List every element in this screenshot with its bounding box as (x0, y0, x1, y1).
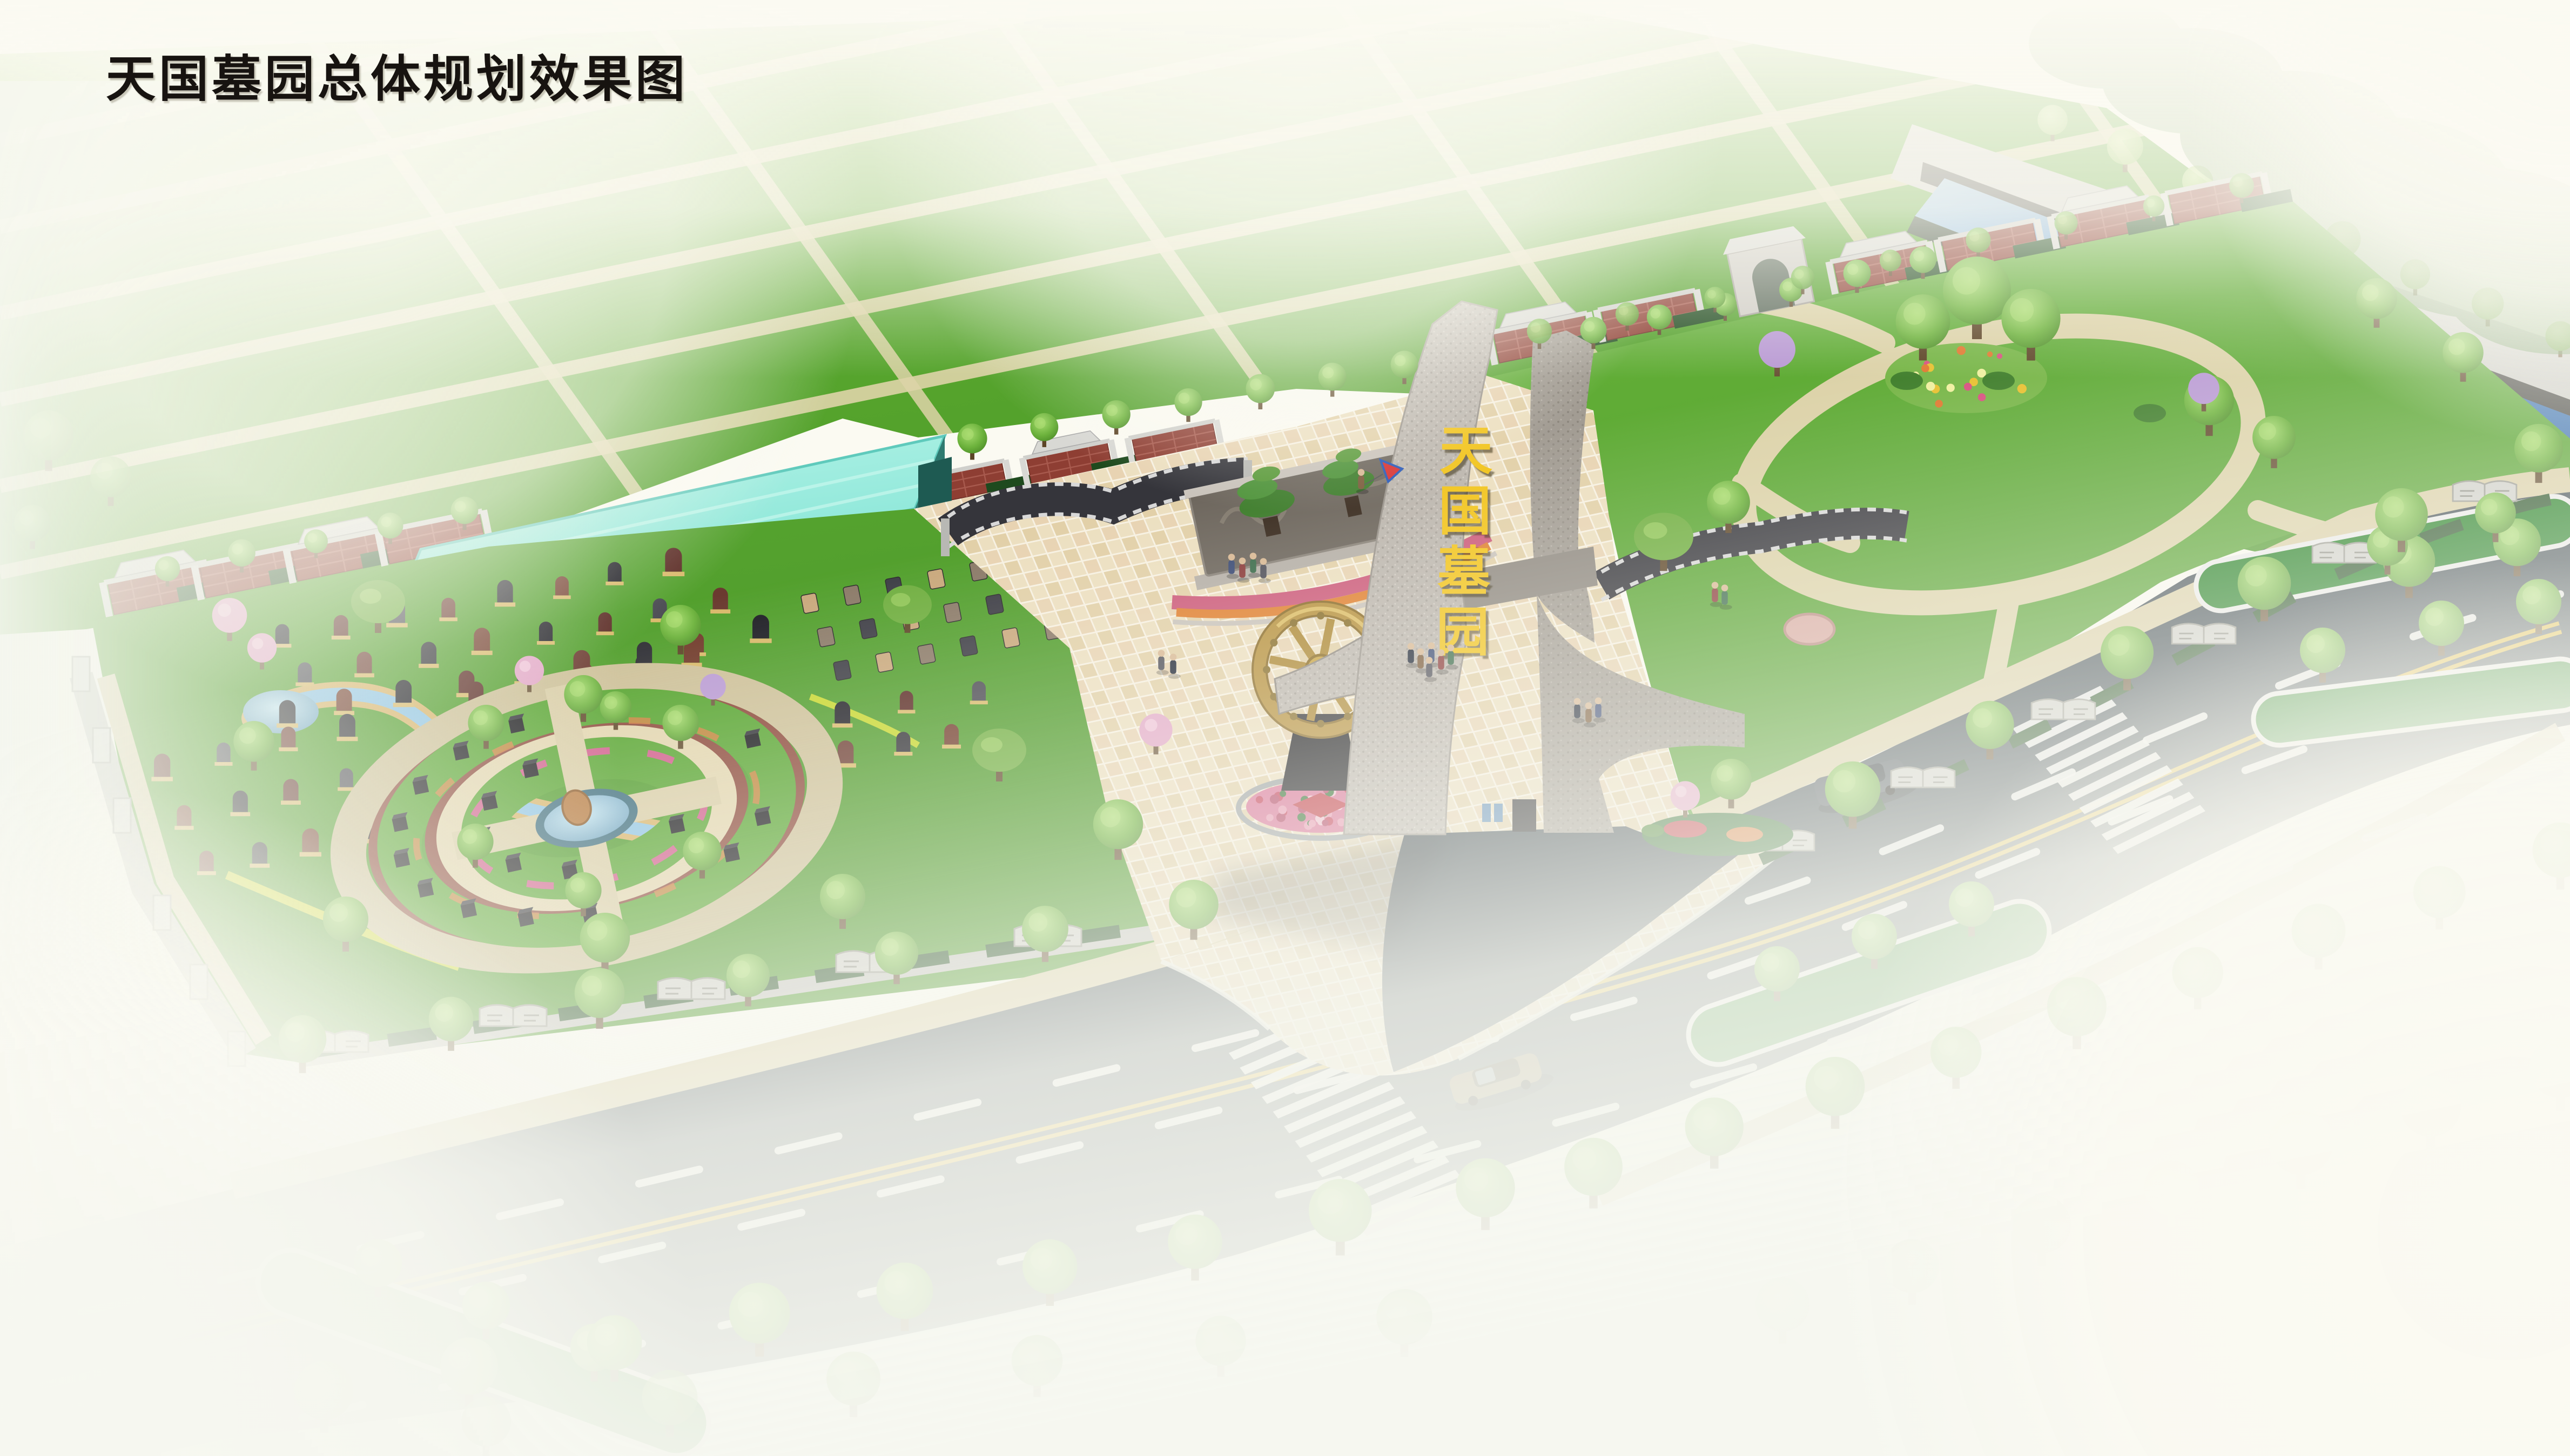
site-plan-rendering: 天 国 墓 园 (0, 0, 2570, 1456)
rendering-canvas: 天 国 墓 园 天国墓园总体规划效果图 (0, 0, 2570, 1456)
fog-overlay (0, 0, 2570, 1456)
page-title: 天国墓园总体规划效果图 (106, 39, 688, 111)
